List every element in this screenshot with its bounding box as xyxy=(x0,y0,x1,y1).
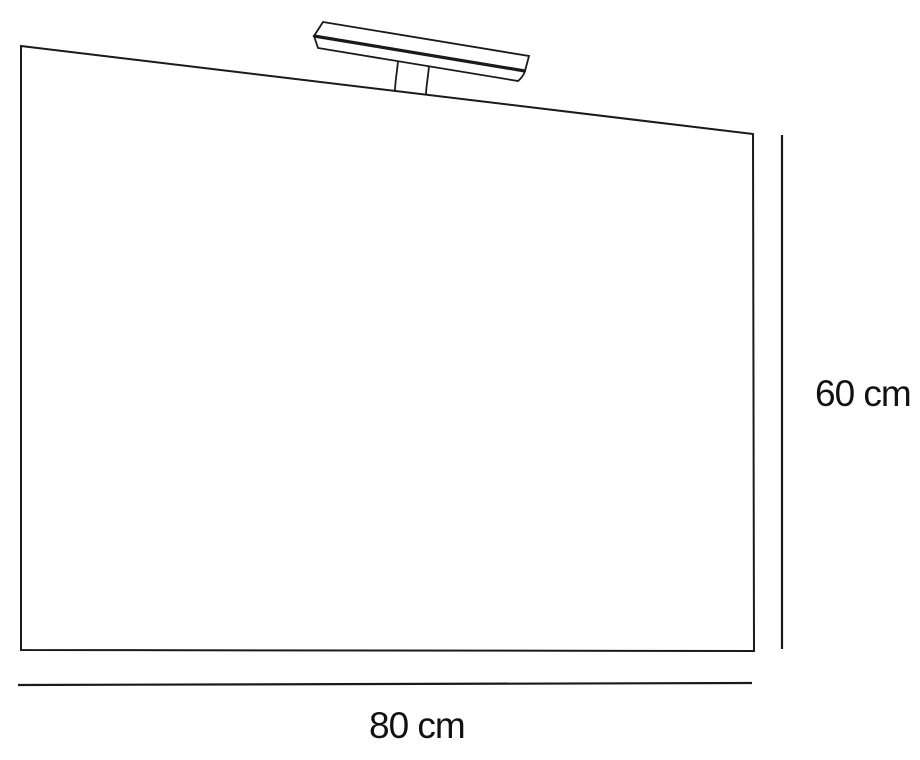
mirror-outline xyxy=(21,46,754,651)
diagram-svg: 60 cm 80 cm xyxy=(0,0,920,760)
lamp-fixture xyxy=(314,22,529,95)
lamp-stem-left-edge xyxy=(395,61,398,91)
height-dimension-label: 60 cm xyxy=(815,373,911,414)
dimension-diagram: 60 cm 80 cm xyxy=(0,0,920,760)
lamp-stem-right-edge xyxy=(426,66,429,95)
width-dimension-label: 80 cm xyxy=(369,705,465,746)
width-dimension-line xyxy=(18,683,752,685)
